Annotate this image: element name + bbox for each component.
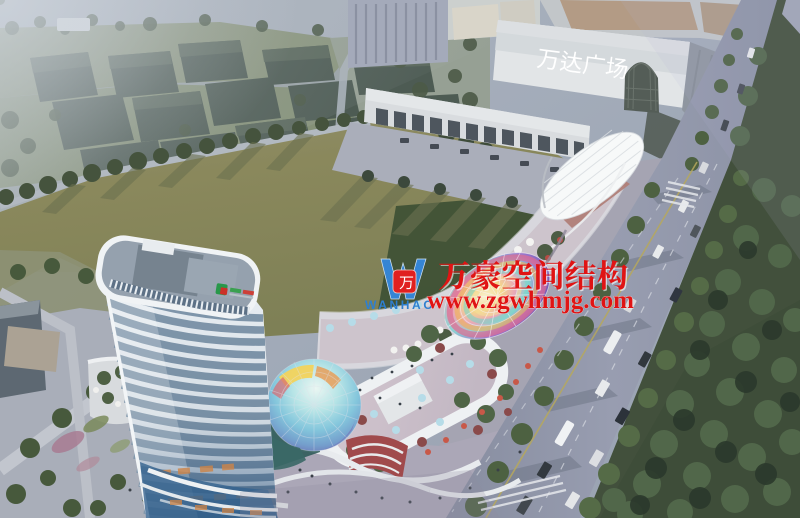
svg-text:www.zgwhmjg.com: www.zgwhmjg.com xyxy=(427,287,634,314)
svg-text:WANHAO: WANHAO xyxy=(365,298,435,312)
